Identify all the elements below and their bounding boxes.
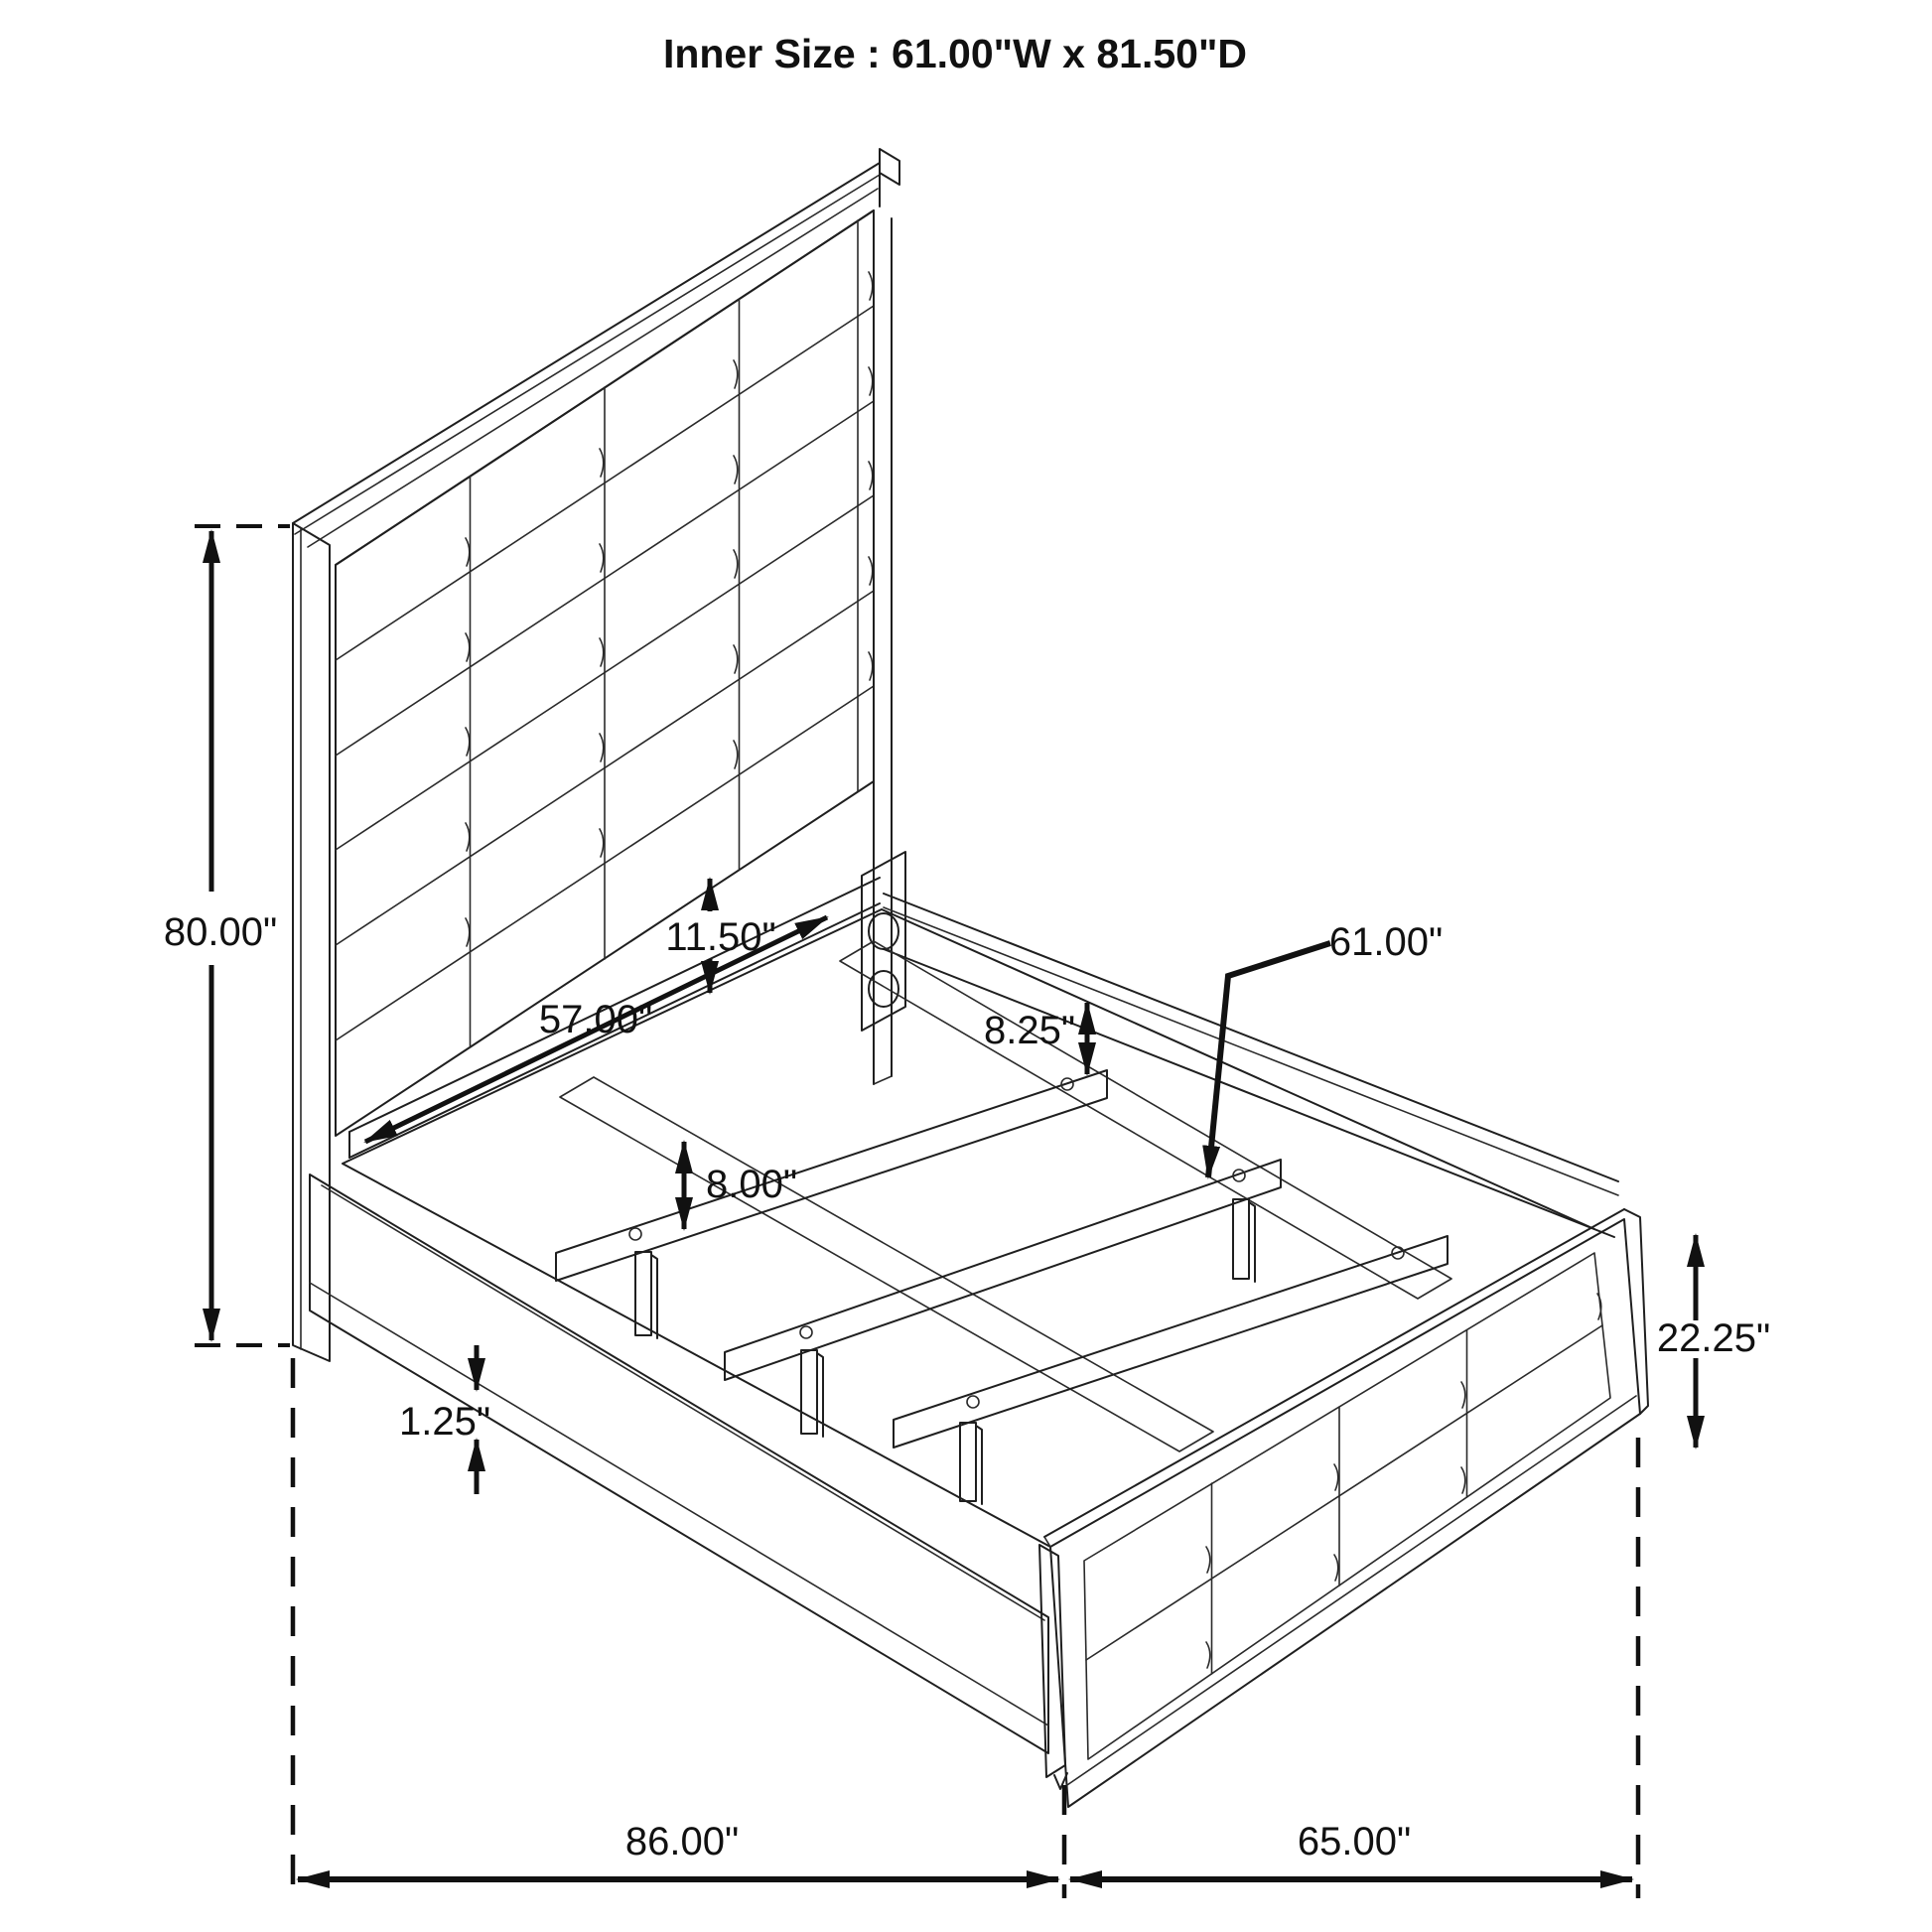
dim-overall-length: 86.00" [298, 1820, 1058, 1879]
left-rail-trim-line [310, 1283, 1048, 1725]
headboard-bracket [862, 852, 905, 1031]
dim-support-leg-height: 8.00" [684, 1142, 797, 1229]
dimension-drawing-page: Inner Size : 61.00"W x 81.50"D [0, 0, 1932, 1932]
footboard-right-cap [1624, 1209, 1648, 1414]
headboard-left-post [293, 523, 330, 1361]
dim-footboard-height: 22.25" [1657, 1235, 1770, 1448]
dim-label-headboard-height: 80.00" [164, 910, 277, 954]
dim-label-support-leg-height: 8.00" [706, 1163, 797, 1206]
dim-head-rail-length: 57.00" [365, 917, 827, 1142]
dim-label-overall-length: 86.00" [625, 1820, 739, 1863]
headboard-top-rail-tab [880, 149, 899, 185]
mattress-slats [556, 1070, 1448, 1448]
dim-headboard-height: 80.00" [164, 531, 277, 1340]
footboard-cap-top [1044, 1209, 1624, 1537]
projection-guides [195, 526, 1638, 1898]
footboard-panel [1084, 1253, 1610, 1759]
headboard-top-rail [293, 149, 899, 565]
headboard [293, 149, 905, 1361]
dim-overall-width: 65.00" [1070, 1820, 1632, 1879]
left-side-rail [310, 1174, 1048, 1753]
dim-label-overall-width: 65.00" [1298, 1820, 1411, 1863]
dim-label-slat-length: 61.00" [1329, 920, 1443, 964]
footboard-base-trim [1064, 1396, 1636, 1787]
bed-base-frame [310, 878, 1618, 1753]
footboard-face [1050, 1219, 1640, 1807]
dim-label-footboard-height: 22.25" [1657, 1316, 1770, 1360]
bed-frame-dimension-diagram: Inner Size : 61.00"W x 81.50"D [0, 0, 1932, 1932]
dim-label-rail-to-slat-gap: 8.25" [984, 1009, 1075, 1052]
dim-rail-to-slat-gap: 8.25" [984, 1003, 1087, 1074]
platform-inner-edges [343, 909, 1594, 1547]
dim-label-rail-trim: 1.25" [399, 1400, 490, 1444]
headboard-right-post [874, 210, 892, 1084]
inner-size-title: Inner Size : 61.00"W x 81.50"D [663, 31, 1247, 76]
dim-label-head-rail-length: 57.00" [539, 998, 652, 1041]
right-side-rail [884, 894, 1618, 1237]
headboard-cushion-curls [466, 272, 873, 946]
dim-panel-gap: 11.50" [665, 879, 775, 993]
dim-rail-trim: 1.25" [399, 1345, 490, 1494]
